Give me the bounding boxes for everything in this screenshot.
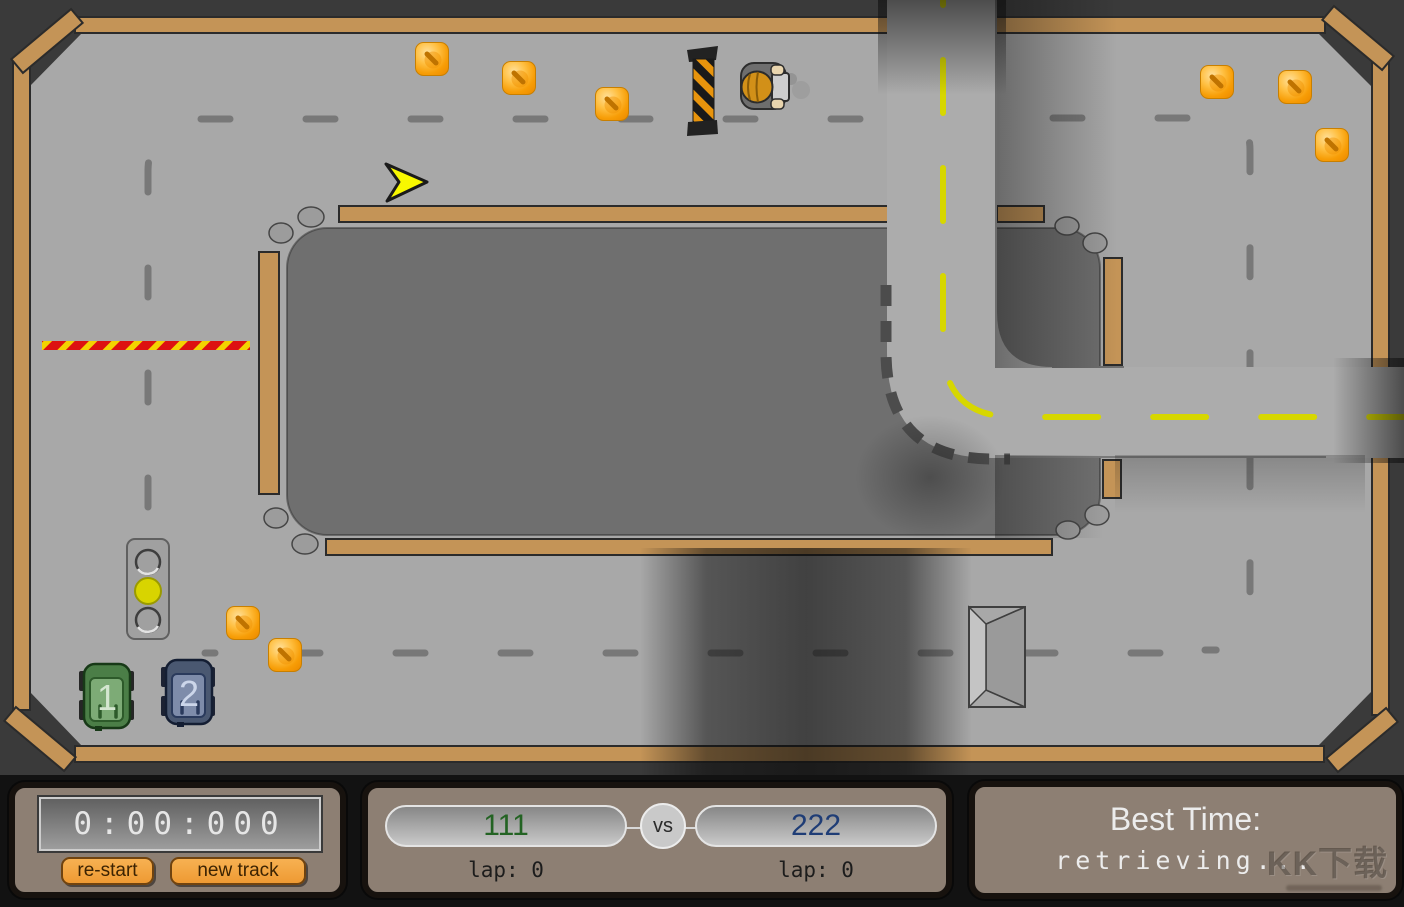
gem-pickup-icon (503, 62, 536, 95)
timer-panel: 0:00:000 re-start new track (9, 782, 346, 898)
restart-button[interactable]: re-start (61, 857, 154, 885)
game-field-canvas[interactable]: 1 2 (0, 0, 1404, 775)
car-1: 1 (79, 664, 134, 731)
vs-badge: vs (640, 803, 686, 849)
player2-lap-counter: lap: 0 (695, 858, 937, 882)
player2-name-display: 222 (695, 805, 937, 847)
traffic-light-yellow-on (135, 578, 161, 604)
best-time-panel: Best Time: retrieving... KK下载 (969, 781, 1402, 899)
lap-timer-display: 0:00:000 (39, 797, 321, 851)
site-watermark: KK下载 (1267, 836, 1388, 885)
match-panel: 111 vs 222 lap: 0 lap: 0 (362, 782, 952, 898)
car-1-number: 1 (97, 677, 117, 718)
gem-pickup-icon (416, 43, 449, 76)
gem-pickup-icon (596, 88, 629, 121)
car-2: 2 (161, 660, 215, 727)
game-window: 1 2 0:00:000 re-start new track 111 vs 2… (0, 0, 1404, 907)
car-2-number: 2 (179, 673, 199, 714)
gem-pickup-icon (227, 607, 260, 640)
site-watermark-url (1286, 885, 1382, 891)
gem-pickup-icon (1279, 71, 1312, 104)
player1-lap-counter: lap: 0 (385, 858, 627, 882)
hud-bar: 0:00:000 re-start new track 111 vs 222 l… (0, 775, 1404, 907)
new-track-button[interactable]: new track (170, 857, 306, 885)
gem-pickup-icon (1201, 66, 1234, 99)
traffic-light (127, 539, 169, 639)
ramp-obstacle (969, 607, 1025, 707)
player1-name-display: 111 (385, 805, 627, 847)
exhaust-smoke (792, 81, 810, 99)
best-time-label: Best Time: (975, 801, 1396, 838)
gem-pickup-icon (269, 639, 302, 672)
gem-pickup-icon (1316, 129, 1349, 162)
start-strip (42, 341, 250, 350)
